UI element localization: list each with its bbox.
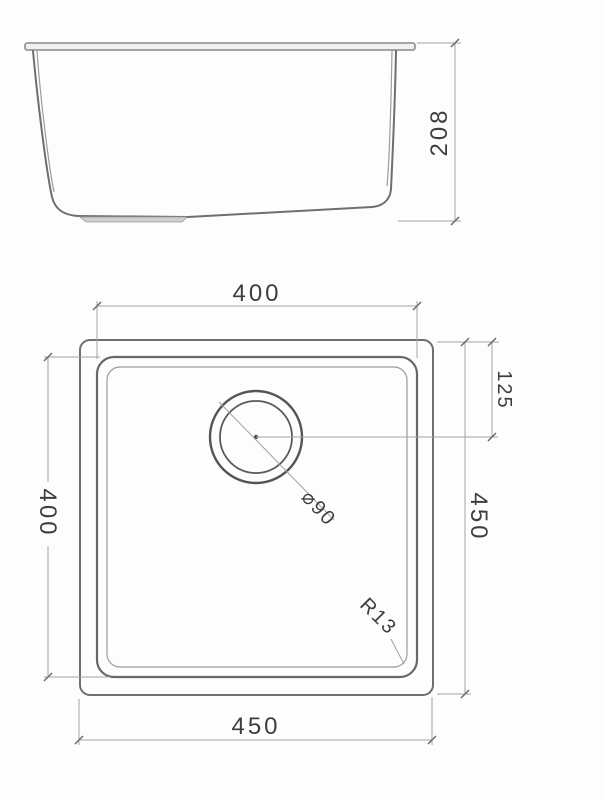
radius-leader [391,639,404,664]
dim-label-height: 208 [426,107,453,156]
side-rim-outline [25,43,415,50]
drain: ⌀90 [210,391,340,531]
dim-label-left-height: 400 [34,488,61,537]
dim-label-corner-radius: R13 [355,594,401,640]
plan-rim-outline [80,340,433,695]
dimension-left-400: 400 [34,353,110,681]
side-right-wall [372,51,396,207]
dimension-drain-offset-125: 125 [256,338,515,441]
side-left-wall [33,51,78,216]
side-bottom [78,207,372,217]
plan-bowl-outline [97,357,417,677]
side-view: 208 [25,39,461,225]
dimension-right-450: 450 [437,338,492,698]
dim-label-drain-diameter: ⌀90 [297,486,341,530]
corner-radius-callout: R13 [355,594,404,664]
sink-technical-drawing: 208 ⌀90 400 [0,0,605,800]
side-base-pad [80,217,187,222]
plan-bowl-inner-line [107,367,407,667]
dimension-top-400: 400 [93,280,421,359]
technical-drawing-page: 208 ⌀90 400 [0,0,605,800]
dim-label-bottom-width: 450 [231,713,280,740]
dim-label-top-width: 400 [232,280,281,307]
dimension-height-208: 208 [398,39,461,225]
dim-label-drain-offset: 125 [493,370,515,409]
dim-label-right-height: 450 [465,492,492,541]
side-left-wall-inner [37,51,54,192]
dimension-bottom-450: 450 [75,697,436,745]
plan-view: ⌀90 400 400 [34,280,515,745]
